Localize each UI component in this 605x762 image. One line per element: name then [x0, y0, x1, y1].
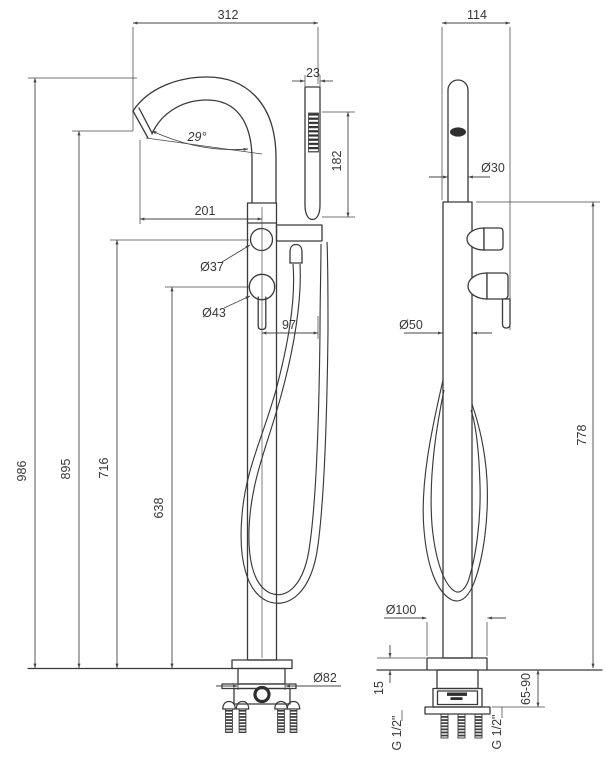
anchor-bolt: [287, 702, 299, 733]
dim-label-base-cover-height: 15: [372, 681, 386, 695]
dim-diverter-diameter: Ø37: [200, 245, 250, 274]
handle-lever-side: [503, 299, 511, 328]
dim-handshower-width: 23: [292, 66, 333, 86]
dim-inlet-left: G 1/2": [390, 710, 404, 751]
dim-label-handle-diameter: Ø43: [202, 306, 226, 320]
handshower-holder-arm: [277, 225, 323, 241]
anchor-bolt: [223, 702, 235, 733]
handshower-wand: [305, 87, 320, 220]
inlet-pipe-ring: [255, 688, 269, 702]
dim-label-height-spout-outlet: 895: [59, 459, 73, 480]
dim-label-handshower-width: 23: [306, 66, 320, 80]
dim-label-inlet-right: G 1/2": [490, 714, 504, 749]
dim-label-overall-width: 312: [218, 8, 239, 22]
shower-hose-side: [423, 380, 487, 601]
spray-face: [309, 113, 319, 152]
dim-label-handshower-length: 182: [330, 151, 344, 172]
dim-label-depth: 114: [467, 8, 487, 22]
dim-label-spout-tube-diameter: Ø30: [481, 161, 505, 175]
diverter-knob-side: [467, 228, 503, 250]
spout-tube-side: [448, 80, 468, 202]
drawing-canvas: 986 895 716 638 312: [0, 0, 605, 762]
dim-label-diverter-diameter: Ø37: [200, 260, 224, 274]
mixer-handle-side: [468, 273, 510, 328]
spout-tip-face: [133, 111, 148, 138]
spout-outlet-side: [450, 127, 466, 136]
hose-fitting: [290, 245, 302, 264]
faucet-column-side: [443, 202, 472, 658]
dim-base-plate-diameter: Ø100: [384, 603, 506, 656]
dim-label-height-diverter: 716: [97, 458, 111, 479]
dim-label-body-height: 778: [575, 425, 589, 446]
mounting-plate: [425, 707, 490, 714]
dim-label-spout-reach: 201: [195, 204, 216, 218]
base-side: [425, 658, 490, 738]
dim-label-base-cover-diameter: Ø82: [313, 671, 337, 685]
drain-mark: [451, 697, 463, 700]
dim-inlet-right: G 1/2": [490, 707, 504, 750]
dim-label-column-diameter: Ø50: [399, 318, 423, 332]
anchor-bolt: [236, 702, 248, 733]
dim-label-inlet-left: G 1/2": [390, 715, 404, 750]
dim-label-height-handle: 638: [152, 498, 166, 519]
dim-overall-width: 312: [133, 8, 318, 131]
dim-spout-angle: 29°: [146, 130, 262, 154]
dim-handle-diameter: Ø43: [202, 296, 250, 320]
technical-drawing: 986 895 716 638 312: [0, 0, 605, 762]
dim-spout-tube-diameter: Ø30: [429, 161, 505, 177]
dim-label-spout-angle: 29°: [187, 130, 207, 144]
dim-label-height-overall: 986: [15, 461, 29, 482]
anchor-bolts: [223, 702, 300, 733]
dim-column-diameter: Ø50: [399, 318, 492, 333]
dim-label-floor-clearance: 65-90: [519, 673, 533, 705]
drain-mark: [447, 693, 467, 696]
dim-height-handle: 638: [152, 287, 249, 668]
base-flange-front: [232, 660, 292, 669]
threaded-rods: [441, 714, 482, 738]
base-flange-side: [427, 658, 487, 670]
diverter-knob-front: [251, 229, 273, 251]
dim-height-diverter: 716: [97, 240, 249, 668]
dim-spout-reach: 201: [140, 140, 262, 224]
front-view: 986 895 716 638 312: [15, 8, 355, 733]
dim-height-overall: 986: [15, 78, 137, 668]
dim-body-height: 778: [476, 202, 600, 668]
dim-floor-clearance: 65-90: [492, 670, 545, 707]
side-view: 114 Ø30: [372, 8, 602, 751]
dim-height-spout-outlet: 895: [59, 131, 133, 668]
dim-base-cover-diameter: Ø82: [216, 671, 341, 690]
dim-label-base-plate-diameter: Ø100: [386, 603, 417, 617]
anchor-bolt: [275, 702, 287, 733]
dim-handshower-length: 182: [322, 112, 355, 217]
